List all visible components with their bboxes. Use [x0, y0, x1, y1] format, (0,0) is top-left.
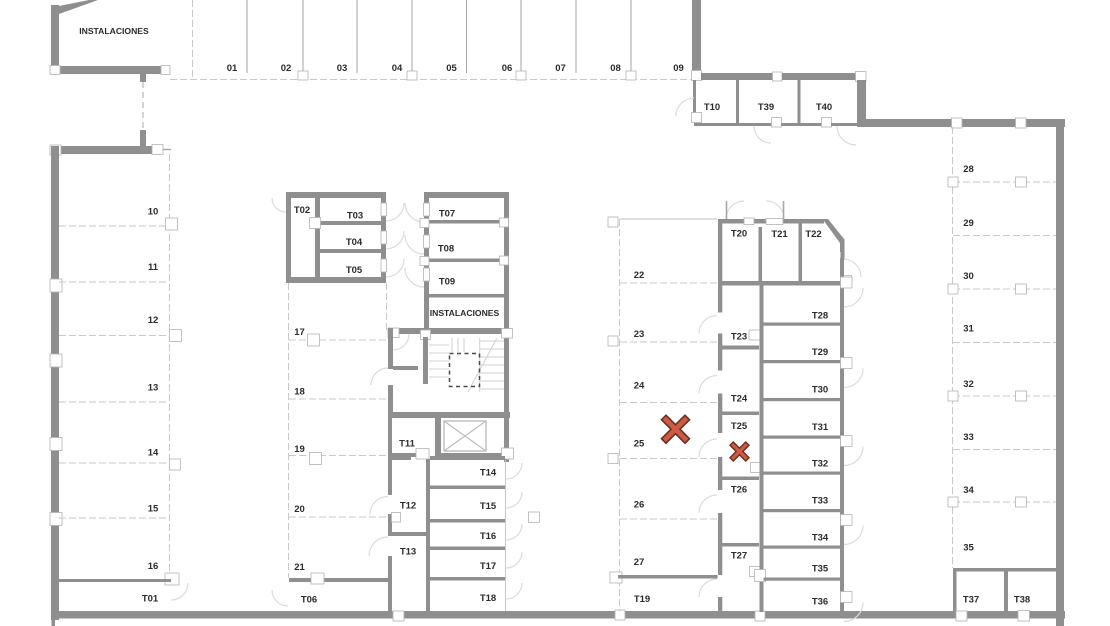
svg-text:T09: T09: [439, 277, 455, 288]
svg-text:35: 35: [963, 543, 974, 554]
svg-text:22: 22: [634, 270, 645, 281]
svg-text:19: 19: [294, 444, 305, 455]
svg-text:T27: T27: [731, 551, 747, 562]
svg-text:29: 29: [963, 218, 974, 229]
svg-text:10: 10: [148, 207, 159, 218]
svg-text:18: 18: [294, 387, 305, 398]
svg-text:T39: T39: [758, 102, 774, 113]
svg-text:T18: T18: [480, 593, 496, 604]
svg-text:24: 24: [634, 381, 645, 392]
svg-text:T02: T02: [294, 205, 310, 216]
svg-text:03: 03: [337, 63, 348, 74]
svg-text:T24: T24: [731, 394, 748, 405]
svg-text:T22: T22: [805, 229, 821, 240]
svg-text:T32: T32: [812, 459, 828, 470]
svg-text:T15: T15: [480, 501, 497, 512]
svg-text:T16: T16: [480, 531, 496, 542]
svg-text:T19: T19: [634, 594, 650, 605]
svg-text:05: 05: [446, 63, 457, 74]
svg-text:T08: T08: [438, 244, 454, 255]
svg-text:T07: T07: [439, 209, 455, 220]
svg-text:T01: T01: [142, 594, 159, 605]
svg-text:T14: T14: [480, 468, 497, 479]
svg-text:02: 02: [281, 63, 292, 74]
svg-text:09: 09: [673, 63, 684, 74]
svg-text:T23: T23: [731, 332, 747, 343]
svg-text:T25: T25: [731, 421, 748, 432]
svg-text:T31: T31: [812, 422, 829, 433]
svg-text:INSTALACIONES: INSTALACIONES: [430, 308, 500, 318]
svg-text:T34: T34: [812, 533, 829, 544]
svg-text:INSTALACIONES: INSTALACIONES: [79, 26, 149, 36]
svg-text:25: 25: [634, 439, 645, 450]
svg-text:11: 11: [148, 262, 159, 273]
svg-text:28: 28: [963, 164, 974, 175]
svg-text:T12: T12: [400, 501, 416, 512]
svg-text:T13: T13: [400, 547, 416, 558]
svg-text:T26: T26: [731, 485, 747, 496]
svg-text:32: 32: [963, 379, 974, 390]
svg-text:T33: T33: [812, 496, 828, 507]
svg-text:T40: T40: [816, 102, 832, 113]
svg-text:17: 17: [294, 327, 305, 338]
svg-text:12: 12: [148, 315, 159, 326]
svg-text:33: 33: [963, 432, 974, 443]
svg-text:06: 06: [502, 63, 513, 74]
svg-text:T05: T05: [346, 265, 363, 276]
svg-text:T06: T06: [301, 595, 317, 606]
svg-text:31: 31: [963, 324, 974, 335]
svg-text:T11: T11: [399, 439, 416, 450]
svg-text:14: 14: [148, 448, 159, 459]
svg-text:34: 34: [963, 485, 974, 496]
svg-text:21: 21: [294, 562, 305, 573]
svg-text:T38: T38: [1014, 595, 1030, 606]
svg-text:T29: T29: [812, 347, 828, 358]
svg-text:T20: T20: [731, 229, 747, 240]
svg-text:T03: T03: [347, 211, 363, 222]
svg-text:T35: T35: [812, 564, 829, 575]
svg-text:T17: T17: [480, 561, 496, 572]
svg-text:T37: T37: [963, 595, 979, 606]
svg-text:T04: T04: [346, 237, 363, 248]
svg-text:07: 07: [555, 63, 566, 74]
svg-text:26: 26: [634, 500, 645, 511]
svg-text:T10: T10: [704, 102, 720, 113]
svg-text:15: 15: [148, 504, 159, 515]
svg-text:T36: T36: [812, 597, 828, 608]
svg-text:T30: T30: [812, 385, 828, 396]
svg-text:20: 20: [294, 504, 305, 515]
svg-text:30: 30: [963, 271, 974, 282]
svg-text:27: 27: [634, 557, 645, 568]
svg-text:T28: T28: [812, 311, 828, 322]
svg-text:13: 13: [148, 383, 159, 394]
svg-text:16: 16: [148, 561, 159, 572]
svg-text:23: 23: [634, 329, 645, 340]
svg-text:T21: T21: [771, 229, 788, 240]
svg-text:01: 01: [227, 63, 238, 74]
svg-text:04: 04: [392, 63, 403, 74]
svg-text:08: 08: [610, 63, 621, 74]
